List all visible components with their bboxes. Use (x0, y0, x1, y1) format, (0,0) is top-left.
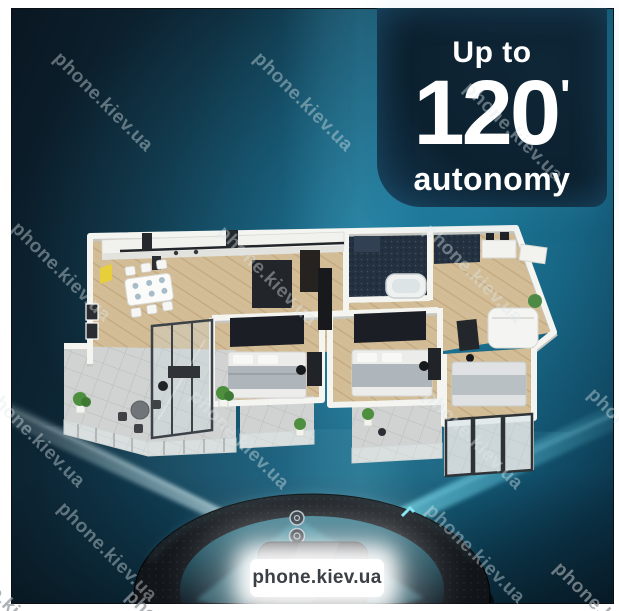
bathtub-basin (392, 279, 420, 293)
black-column (318, 268, 332, 330)
dark-rug (456, 319, 479, 351)
side-table (466, 354, 474, 362)
power-button-icon (290, 529, 305, 544)
bedroom-3 (452, 362, 526, 406)
patio-chair (134, 424, 143, 433)
wall-window-2 (86, 323, 98, 339)
patio-chair (152, 400, 161, 409)
sink (194, 250, 198, 254)
tv-panel-2 (354, 311, 426, 343)
desk-1 (307, 352, 322, 386)
dresser-2 (519, 244, 547, 263)
patio-table (131, 401, 149, 419)
oven-appliance (142, 233, 152, 250)
pillow (233, 355, 253, 364)
desk-chair-2 (419, 361, 429, 371)
desk-behind-glass (168, 366, 200, 378)
tv-panel-1 (230, 315, 304, 347)
cooktop (174, 251, 178, 255)
bed-3-blanket (452, 375, 526, 395)
plant-icon (362, 408, 374, 426)
caption-box: phone.kiev.ua (250, 559, 384, 597)
bed-1-blanket (228, 366, 306, 389)
photo-frame: Up to 120 ' autonomy phone.kiev.ua phone… (0, 0, 619, 611)
decor-item (500, 232, 509, 240)
shower-fixture (354, 236, 380, 252)
plant-icon (294, 418, 306, 436)
desk-chair-1 (296, 365, 306, 375)
decor-item (486, 233, 494, 240)
plant-icon (528, 294, 542, 308)
desk-2 (428, 348, 441, 380)
caption-text: phone.kiev.ua (252, 567, 381, 589)
dresser-1 (482, 240, 516, 258)
home-button-icon (290, 511, 304, 525)
office-chair (158, 381, 168, 391)
dark-door (300, 250, 320, 292)
pillow (357, 353, 377, 362)
pillow (258, 355, 278, 364)
badge-minutes-mark: ' (560, 74, 570, 118)
small-figure (378, 428, 386, 436)
patio-chair (118, 412, 127, 421)
pillow (382, 353, 402, 362)
